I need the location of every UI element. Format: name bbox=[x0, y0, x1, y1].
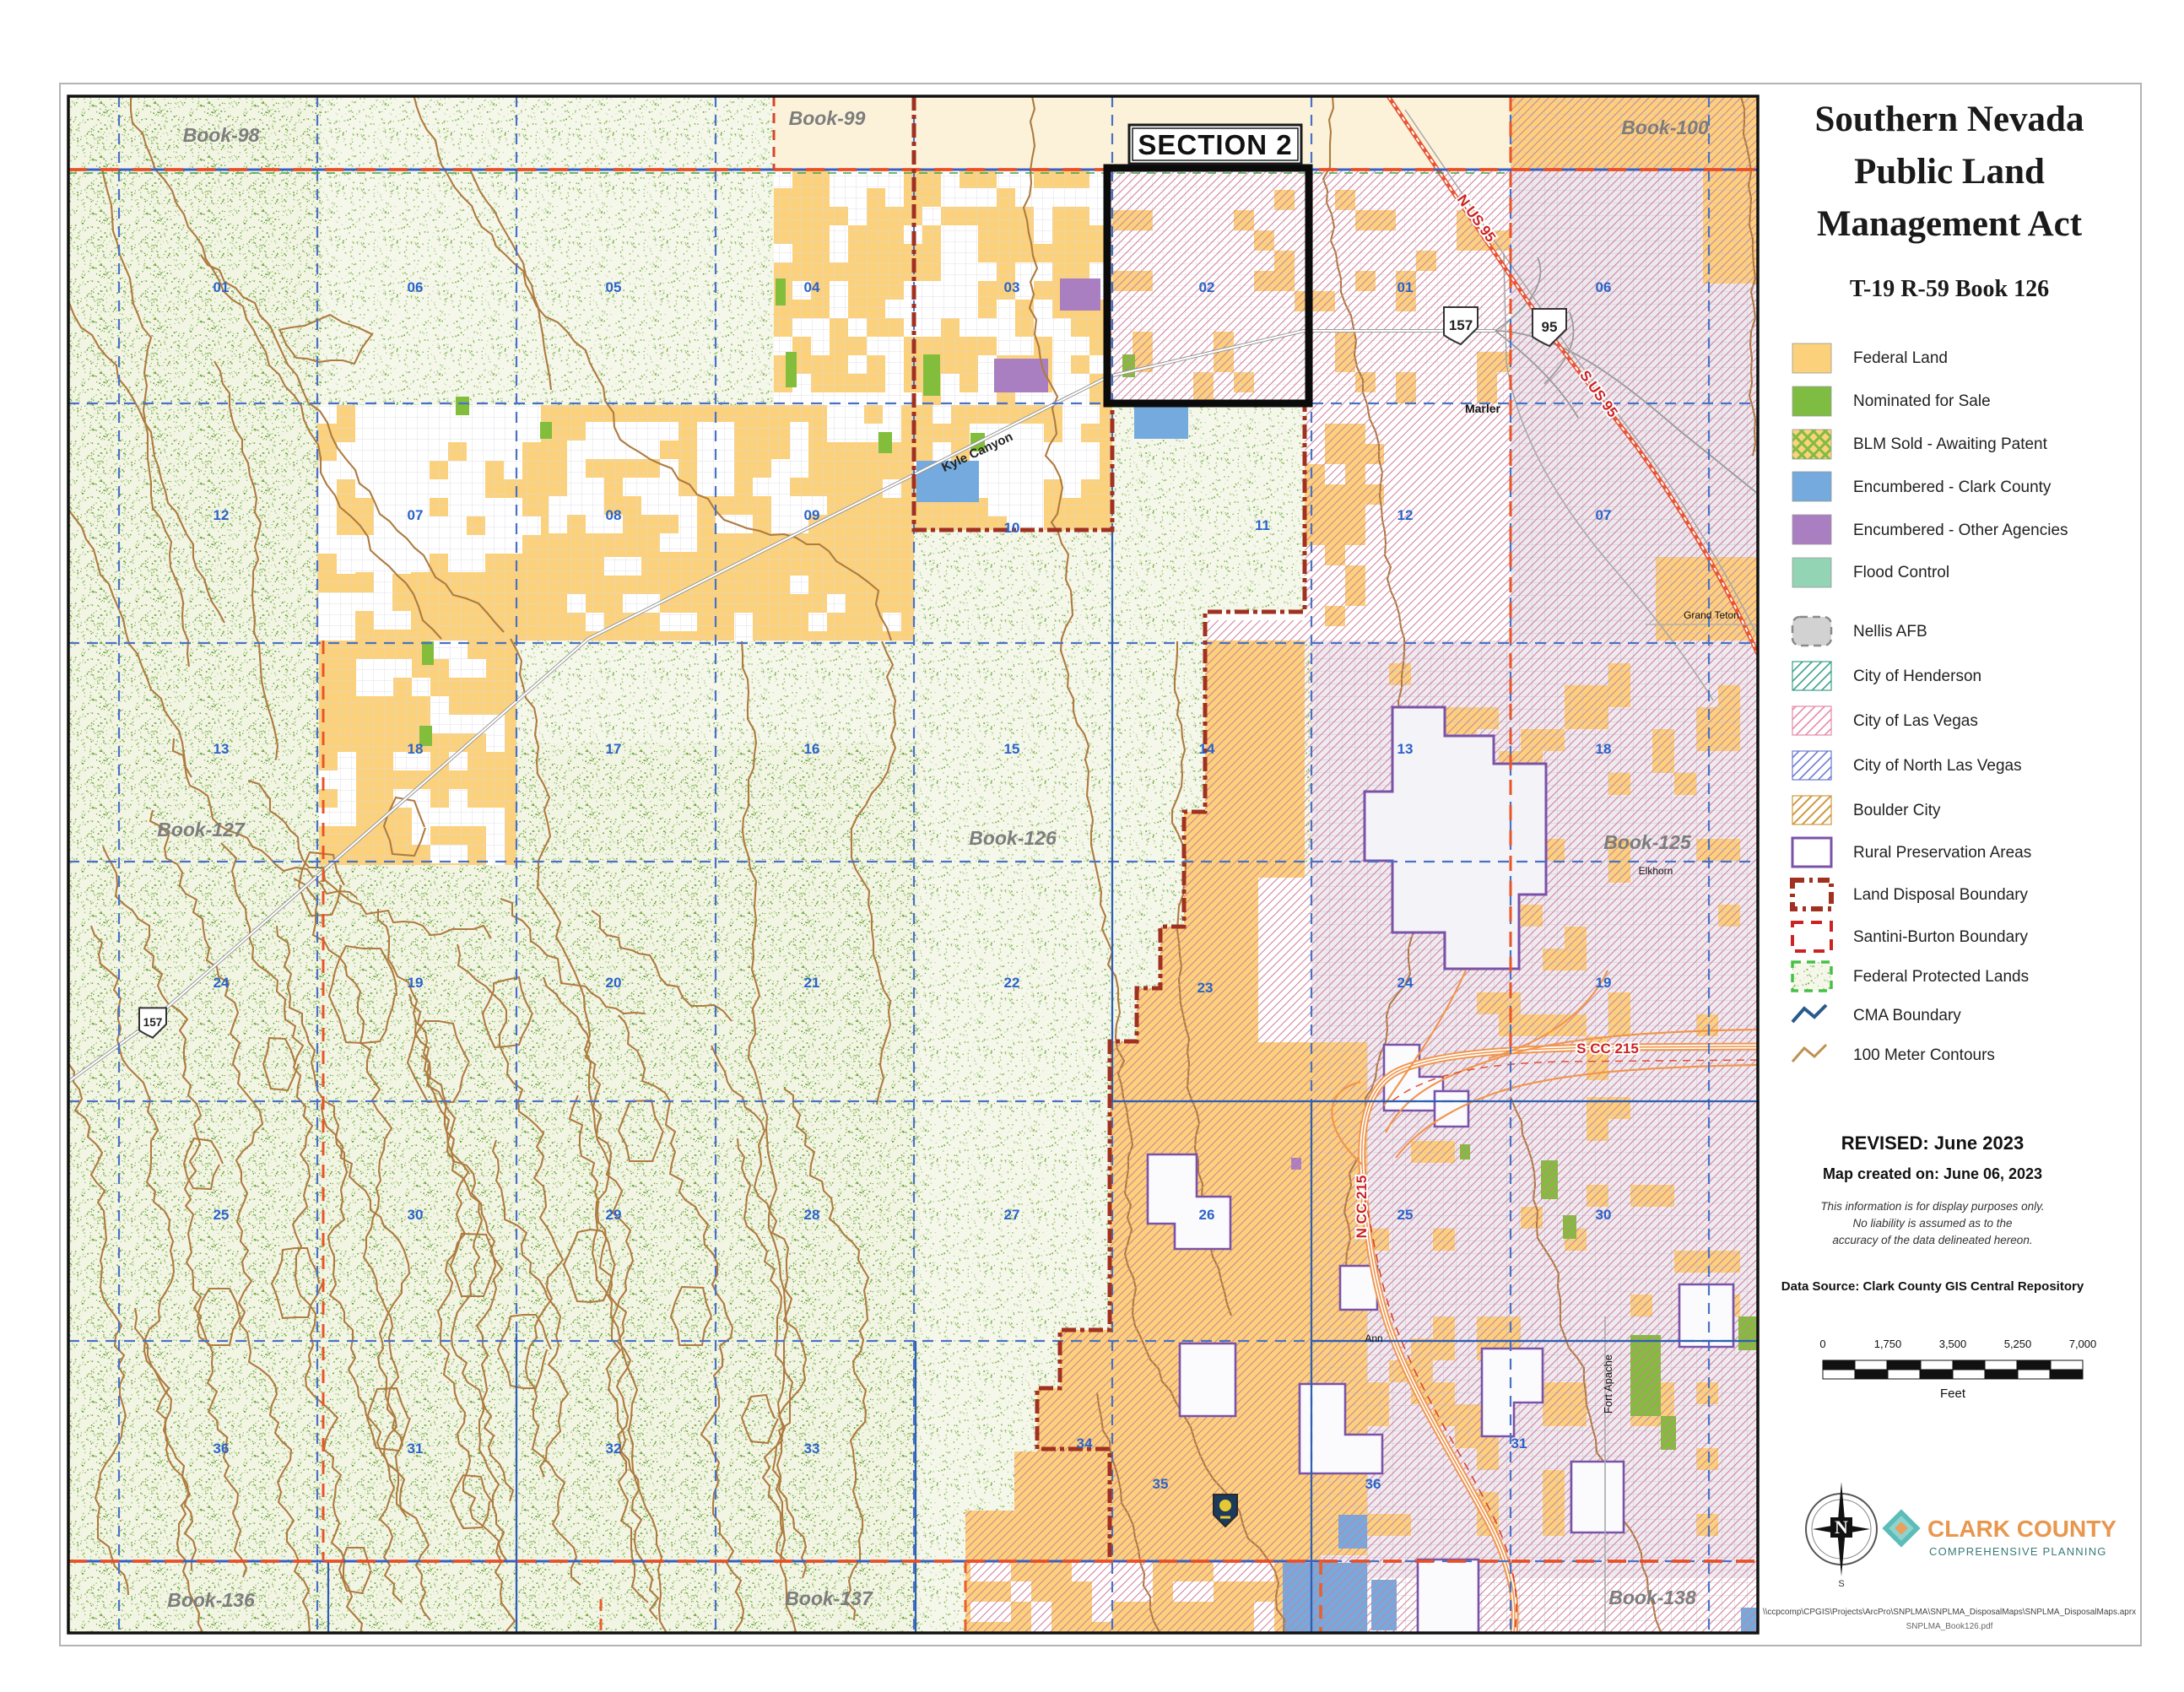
svg-text:95: 95 bbox=[1542, 319, 1558, 335]
svg-text:29: 29 bbox=[606, 1207, 622, 1223]
svg-text:25: 25 bbox=[214, 1207, 230, 1223]
svg-text:CLARK COUNTY: CLARK COUNTY bbox=[1927, 1516, 2116, 1542]
svg-text:City of Henderson: City of Henderson bbox=[1853, 668, 1981, 685]
svg-text:04: 04 bbox=[804, 279, 820, 295]
svg-text:Book-127: Book-127 bbox=[157, 819, 246, 841]
svg-text:36: 36 bbox=[1365, 1476, 1381, 1492]
svg-text:3,500: 3,500 bbox=[1939, 1338, 1967, 1350]
svg-text:City of Las Vegas: City of Las Vegas bbox=[1853, 712, 1978, 730]
svg-text:01: 01 bbox=[1397, 279, 1414, 295]
svg-text:1,750: 1,750 bbox=[1874, 1338, 1902, 1350]
svg-text:07: 07 bbox=[408, 507, 424, 523]
svg-text:15: 15 bbox=[1004, 741, 1020, 757]
svg-text:06: 06 bbox=[408, 279, 424, 295]
svg-text:Land Disposal Boundary: Land Disposal Boundary bbox=[1853, 886, 2029, 904]
svg-text:08: 08 bbox=[606, 507, 622, 523]
svg-text:SECTION 2: SECTION 2 bbox=[1138, 129, 1292, 160]
svg-text:22: 22 bbox=[1004, 975, 1020, 991]
svg-text:Federal Protected Lands: Federal Protected Lands bbox=[1853, 968, 2029, 986]
svg-text:35: 35 bbox=[1153, 1476, 1169, 1492]
svg-text:12: 12 bbox=[1397, 507, 1414, 523]
svg-text:Map created on: June 06, 2023: Map created on: June 06, 2023 bbox=[1823, 1165, 2042, 1182]
svg-text:31: 31 bbox=[1511, 1435, 1527, 1451]
svg-text:N CC 215: N CC 215 bbox=[1354, 1176, 1370, 1239]
svg-text:S: S bbox=[1838, 1579, 1844, 1589]
svg-text:13: 13 bbox=[214, 741, 230, 757]
svg-text:Encumbered - Other Agencies: Encumbered - Other Agencies bbox=[1853, 522, 2068, 539]
svg-text:Book-137: Book-137 bbox=[785, 1587, 873, 1609]
svg-text:157: 157 bbox=[143, 1016, 163, 1029]
svg-text:Marler: Marler bbox=[1465, 402, 1501, 415]
svg-text:Book-125: Book-125 bbox=[1603, 831, 1692, 853]
svg-text:07: 07 bbox=[1596, 507, 1612, 523]
svg-text:19: 19 bbox=[408, 975, 424, 991]
svg-text:30: 30 bbox=[408, 1207, 424, 1223]
svg-text:5,250: 5,250 bbox=[2004, 1338, 2032, 1350]
svg-text:T-19 R-59 Book 126: T-19 R-59 Book 126 bbox=[1850, 276, 2049, 302]
svg-text:BLM Sold - Awaiting Patent: BLM Sold - Awaiting Patent bbox=[1853, 435, 2048, 453]
svg-text:Nellis AFB: Nellis AFB bbox=[1853, 623, 1927, 641]
svg-text:24: 24 bbox=[214, 975, 230, 991]
svg-text:10: 10 bbox=[1004, 520, 1020, 536]
svg-text:11: 11 bbox=[1255, 517, 1270, 533]
svg-text:01: 01 bbox=[214, 279, 230, 295]
svg-text:This information is for displa: This information is for display purposes… bbox=[1820, 1200, 2044, 1213]
svg-text:Grand Teton: Grand Teton bbox=[1684, 609, 1739, 621]
svg-text:36: 36 bbox=[214, 1441, 230, 1457]
svg-text:Book-99: Book-99 bbox=[789, 107, 866, 129]
svg-text:20: 20 bbox=[606, 975, 622, 991]
svg-text:16: 16 bbox=[804, 741, 820, 757]
svg-text:7,000: 7,000 bbox=[2069, 1338, 2097, 1350]
svg-text:14: 14 bbox=[1199, 741, 1215, 757]
svg-text:09: 09 bbox=[804, 507, 820, 523]
svg-text:Public Land: Public Land bbox=[1854, 152, 2045, 192]
svg-text:33: 33 bbox=[804, 1441, 820, 1457]
svg-text:17: 17 bbox=[606, 741, 622, 757]
svg-text:100 Meter Contours: 100 Meter Contours bbox=[1853, 1046, 1995, 1064]
svg-text:Book-136: Book-136 bbox=[167, 1589, 255, 1611]
svg-text:S CC 215: S CC 215 bbox=[1576, 1041, 1639, 1057]
svg-text:32: 32 bbox=[606, 1441, 622, 1457]
svg-text:28: 28 bbox=[804, 1207, 820, 1223]
svg-text:COMPREHENSIVE PLANNING: COMPREHENSIVE PLANNING bbox=[1929, 1545, 2107, 1558]
svg-text:Ann: Ann bbox=[1365, 1333, 1382, 1344]
svg-text:Federal Land: Federal Land bbox=[1853, 349, 1948, 367]
svg-text:Flood Control: Flood Control bbox=[1853, 564, 1949, 581]
svg-text:Boulder City: Boulder City bbox=[1853, 802, 1941, 819]
svg-text:City of North Las Vegas: City of North Las Vegas bbox=[1853, 757, 2022, 775]
svg-text:24: 24 bbox=[1397, 975, 1414, 991]
svg-text:Nominated for Sale: Nominated for Sale bbox=[1853, 392, 1991, 410]
svg-text:34: 34 bbox=[1077, 1435, 1093, 1451]
svg-text:02: 02 bbox=[1199, 279, 1215, 295]
svg-text:23: 23 bbox=[1197, 980, 1214, 996]
svg-text:26: 26 bbox=[1199, 1207, 1215, 1223]
svg-text:Book-126: Book-126 bbox=[969, 827, 1057, 849]
svg-text:03: 03 bbox=[1004, 279, 1020, 295]
svg-text:18: 18 bbox=[408, 741, 424, 757]
svg-text:Elkhorn: Elkhorn bbox=[1639, 865, 1673, 877]
svg-text:SNPLMA_Book126.pdf: SNPLMA_Book126.pdf bbox=[1906, 1622, 1993, 1631]
svg-text:Data Source: Clark County GIS: Data Source: Clark County GIS Central Re… bbox=[1781, 1279, 2084, 1294]
svg-text:27: 27 bbox=[1004, 1207, 1020, 1223]
svg-text:CMA Boundary: CMA Boundary bbox=[1853, 1007, 1961, 1024]
svg-text:Feet: Feet bbox=[1940, 1387, 1966, 1401]
svg-text:18: 18 bbox=[1596, 741, 1612, 757]
svg-text:06: 06 bbox=[1596, 279, 1612, 295]
svg-text:accuracy of the data delineate: accuracy of the data delineated hereon. bbox=[1832, 1234, 2032, 1246]
svg-text:Southern Nevada: Southern Nevada bbox=[1815, 100, 2084, 139]
svg-text:31: 31 bbox=[408, 1441, 424, 1457]
svg-text:Book-100: Book-100 bbox=[1621, 116, 1709, 138]
svg-text:157: 157 bbox=[1449, 317, 1473, 333]
svg-text:Fort Apache: Fort Apache bbox=[1602, 1354, 1614, 1414]
svg-text:Encumbered - Clark County: Encumbered - Clark County bbox=[1853, 478, 2052, 496]
svg-text:25: 25 bbox=[1397, 1207, 1414, 1223]
svg-text:Book-98: Book-98 bbox=[183, 124, 260, 146]
svg-text:Rural Preservation Areas: Rural Preservation Areas bbox=[1853, 844, 2031, 862]
svg-text:13: 13 bbox=[1397, 741, 1414, 757]
svg-text:05: 05 bbox=[606, 279, 622, 295]
svg-text:19: 19 bbox=[1596, 975, 1612, 991]
svg-text:N: N bbox=[1835, 1516, 1848, 1538]
svg-text:12: 12 bbox=[214, 507, 230, 523]
svg-text:No liability is assumed as to: No liability is assumed as to the bbox=[1852, 1217, 2012, 1230]
svg-text:21: 21 bbox=[804, 975, 820, 991]
svg-text:Management Act: Management Act bbox=[1817, 204, 2083, 244]
svg-text:0: 0 bbox=[1819, 1338, 1825, 1350]
svg-text:Book-138: Book-138 bbox=[1608, 1587, 1696, 1608]
svg-text:REVISED: June 2023: REVISED: June 2023 bbox=[1841, 1133, 2024, 1154]
svg-text:Santini-Burton Boundary: Santini-Burton Boundary bbox=[1853, 928, 2029, 946]
svg-text:\\ccpcomp\CPGIS\Projects\ArcPr: \\ccpcomp\CPGIS\Projects\ArcPro\SNPLMA\S… bbox=[1763, 1608, 2136, 1617]
svg-text:30: 30 bbox=[1596, 1207, 1612, 1223]
